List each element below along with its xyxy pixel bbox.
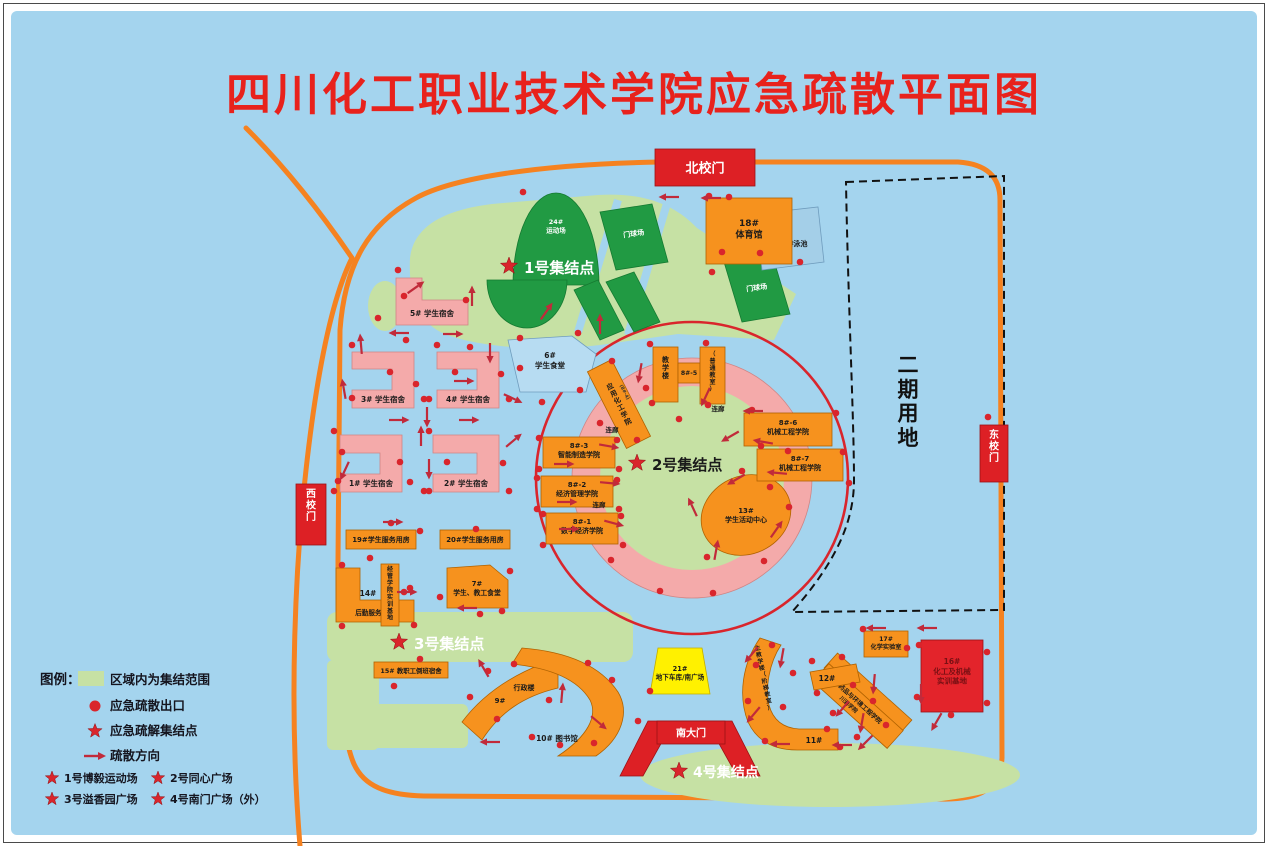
bldg-7-canteen: 7#学生、教工食堂 bbox=[447, 565, 508, 608]
exit-dot bbox=[833, 410, 840, 417]
evacuation-arrow-head bbox=[389, 329, 397, 336]
exit-dot bbox=[339, 449, 346, 456]
label: 地 bbox=[898, 426, 919, 450]
evacuation-arrow bbox=[866, 624, 887, 631]
bldg-9-admin-label: 9# bbox=[495, 697, 506, 705]
bldg-1-dorm-label: 1# 学生宿舍 bbox=[349, 478, 394, 488]
exit-dot bbox=[860, 626, 867, 633]
exit-dot bbox=[331, 428, 338, 435]
exit-dot bbox=[539, 399, 546, 406]
evacuation-arrow bbox=[917, 624, 938, 631]
exit-dot bbox=[676, 416, 683, 423]
bldg-19-service: 19#学生服务用房 bbox=[346, 530, 416, 549]
exit-dot bbox=[339, 562, 346, 569]
exit-dot bbox=[846, 480, 853, 487]
exit-dot bbox=[473, 526, 480, 533]
exit-dot bbox=[609, 677, 616, 684]
exit-dot bbox=[780, 704, 787, 711]
exit-dot bbox=[769, 642, 776, 649]
legend-heading: 图例： bbox=[40, 671, 81, 688]
evacuation-arrow-shaft bbox=[561, 690, 562, 703]
exit-dot bbox=[557, 742, 564, 749]
bldg-2-dorm: 2# 学生宿舍 bbox=[433, 435, 499, 492]
exit-dot bbox=[500, 460, 507, 467]
legend-site-3: 3号溢香园广场 bbox=[45, 792, 137, 806]
evacuation-arrow-head bbox=[659, 193, 667, 200]
bldg-9-admin-label: 行政楼 bbox=[513, 683, 535, 692]
label: 实 bbox=[387, 593, 393, 601]
evacuation-arrow-head bbox=[559, 682, 567, 690]
exit-dot bbox=[739, 468, 746, 475]
exit-dot bbox=[904, 645, 911, 652]
exit-dot bbox=[401, 293, 408, 300]
label: 楼 bbox=[662, 371, 669, 380]
exit-dot bbox=[647, 688, 654, 695]
evacuation-arrow-head bbox=[514, 396, 524, 406]
label: 管 bbox=[387, 572, 393, 580]
evacuation-arrow bbox=[417, 426, 424, 447]
exit-dot bbox=[649, 400, 656, 407]
exit-dot bbox=[840, 449, 847, 456]
gate-south-label: 南大门 bbox=[676, 726, 706, 739]
exit-dot bbox=[616, 466, 623, 473]
label: 门 bbox=[306, 510, 316, 523]
label: 经 bbox=[387, 565, 393, 573]
exit-dot bbox=[608, 557, 615, 564]
bldg-6-canteen: 6#学生食堂 bbox=[508, 336, 596, 392]
bldg-16-training-base: 16#化工及机械实训基地 bbox=[921, 640, 983, 712]
bldg-11-main-teaching-label: 11# bbox=[806, 736, 823, 745]
bldg-9-admin: 行政楼9# bbox=[462, 660, 558, 740]
evacuation-arrow-head bbox=[701, 194, 709, 201]
exit-dot bbox=[331, 488, 338, 495]
legend-site-label: 4号南门广场（外） bbox=[170, 792, 266, 806]
evacuation-arrow-head bbox=[917, 624, 925, 631]
exit-dot bbox=[413, 381, 420, 388]
exit-dot bbox=[467, 694, 474, 701]
exit-dot bbox=[467, 344, 474, 351]
exit-dot bbox=[437, 594, 444, 601]
bldg-3-dorm: 3# 学生宿舍 bbox=[352, 352, 414, 408]
exit-dot bbox=[839, 654, 846, 661]
bldg-4-dorm-label: 4# 学生宿舍 bbox=[446, 394, 491, 404]
evacuation-arrow bbox=[558, 682, 567, 703]
evacuation-arrow-head bbox=[472, 416, 480, 423]
gate-east: 东校门 bbox=[980, 425, 1008, 482]
campus-map: 二期用地24#运动场门球场门球场游泳池18#体育馆5# 学生宿舍3# 学生宿舍4… bbox=[0, 0, 1268, 846]
corridor-label: 连廊 bbox=[712, 404, 726, 413]
evacuation-arrow-head bbox=[417, 426, 424, 434]
assembly-area bbox=[330, 704, 468, 748]
exit-dot bbox=[757, 250, 764, 257]
exit-dot bbox=[614, 437, 621, 444]
exit-dot bbox=[597, 420, 604, 427]
exit-dot bbox=[349, 395, 356, 402]
legend-item-label: 疏散方向 bbox=[110, 748, 160, 763]
exit-dot bbox=[575, 330, 582, 337]
exit-dot bbox=[499, 608, 506, 615]
exit-dot bbox=[534, 506, 541, 513]
assembly-2-label: 2号集结点 bbox=[652, 456, 722, 474]
bldg-21-parking: 21#地下车库/南广场 bbox=[650, 648, 710, 694]
assembly-3-label: 3号集结点 bbox=[414, 635, 484, 653]
bldg-8-5-link-label: 8#-5 bbox=[681, 370, 697, 377]
assembly-4-label: 4号集结点 bbox=[693, 764, 759, 781]
exit-dot bbox=[850, 682, 857, 689]
exit-dot bbox=[407, 479, 414, 486]
legend-item-label: 应急疏散出口 bbox=[110, 698, 185, 713]
label: 校 bbox=[306, 499, 317, 512]
evacuation-arrow bbox=[425, 459, 432, 480]
vertical-label: 教学楼 bbox=[661, 355, 670, 380]
evacuation-arrow bbox=[459, 416, 480, 423]
exit-dot bbox=[814, 690, 821, 697]
bldg-2-dorm-label: 2# 学生宿舍 bbox=[444, 478, 489, 488]
exit-dot bbox=[434, 342, 441, 349]
exit-dot bbox=[703, 340, 710, 347]
exit-dot bbox=[620, 542, 627, 549]
bldg-20-service-label: 20#学生服务用房 bbox=[446, 535, 504, 544]
exit-dot bbox=[511, 661, 518, 668]
label: 校 bbox=[989, 440, 1000, 453]
exit-dot bbox=[618, 513, 625, 520]
exit-dot bbox=[426, 396, 433, 403]
exit-dot bbox=[498, 371, 505, 378]
exit-dot bbox=[529, 734, 536, 741]
exit-dot bbox=[948, 712, 955, 719]
evacuation-arrow bbox=[776, 648, 787, 669]
vertical-label: 西校门 bbox=[306, 488, 317, 523]
legend-area-swatch bbox=[78, 671, 104, 686]
road bbox=[246, 128, 352, 258]
evacuation-arrow-head bbox=[856, 725, 864, 734]
exit-dot bbox=[870, 698, 877, 705]
evacuation-arrow bbox=[423, 407, 430, 428]
bldg-3-dorm-label: 3# 学生宿舍 bbox=[361, 394, 406, 404]
bldg-10-library: 10# 图书馆 bbox=[512, 648, 623, 756]
exit-dot bbox=[616, 506, 623, 513]
exit-dot bbox=[657, 588, 664, 595]
bldg-15-staff-dorm-label: 15# 教职工倒班宿舍 bbox=[380, 666, 442, 675]
exit-dot bbox=[585, 660, 592, 667]
exit-dot bbox=[634, 437, 641, 444]
label: 东 bbox=[989, 428, 999, 441]
exit-dot bbox=[830, 710, 837, 717]
exit-dot bbox=[517, 335, 524, 342]
exit-dot bbox=[506, 488, 513, 495]
exit-dot bbox=[591, 740, 598, 747]
exit-dot bbox=[609, 358, 616, 365]
label: 室 bbox=[709, 378, 715, 386]
evacuation-arrow-shaft bbox=[774, 473, 787, 474]
label: 用 bbox=[898, 402, 919, 426]
evacuation-arrow-head bbox=[467, 377, 475, 384]
exit-dot bbox=[577, 387, 584, 394]
bldg-11-main-teaching: 主教学楼（阶梯教室）11# bbox=[743, 638, 838, 750]
exit-dot bbox=[517, 365, 524, 372]
legend-item-label: 区域内为集结范围 bbox=[110, 672, 210, 687]
exit-dot bbox=[540, 511, 547, 518]
legend-site-label: 2号同心广场 bbox=[170, 771, 233, 785]
exit-dot bbox=[536, 466, 543, 473]
label: 门 bbox=[989, 451, 999, 464]
exit-dot bbox=[452, 369, 459, 376]
label: 普 bbox=[709, 357, 715, 365]
evacuation-arrow-shaft bbox=[781, 648, 783, 661]
label: 基 bbox=[386, 607, 394, 615]
exit-dot bbox=[397, 459, 404, 466]
evacuation-arrow-shaft bbox=[361, 341, 362, 354]
exit-dot bbox=[426, 488, 433, 495]
label: 学 bbox=[662, 363, 669, 372]
exit-dot bbox=[444, 459, 451, 466]
legend-item-star: 应急疏解集结点 bbox=[88, 723, 198, 738]
evacuation-arrow bbox=[389, 416, 410, 423]
evacuation-arrow-head bbox=[776, 660, 784, 669]
bldg-20-service: 20#学生服务用房 bbox=[440, 530, 510, 549]
exit-dot bbox=[704, 554, 711, 561]
evacuation-arrow-shaft bbox=[506, 438, 516, 446]
gate-north-label: 北校门 bbox=[685, 160, 724, 176]
corridor-label: 连廊 bbox=[606, 425, 620, 434]
bldg-8-7: 8#-7机械工程学院 bbox=[757, 449, 843, 481]
legend-site-star bbox=[45, 792, 58, 805]
legend-item-arrow: 疏散方向 bbox=[84, 748, 160, 763]
exit-dot bbox=[984, 649, 991, 656]
exit-dot bbox=[520, 189, 527, 196]
evacuation-arrow bbox=[389, 329, 410, 336]
legend-exit-dot bbox=[90, 701, 101, 712]
exit-dot bbox=[417, 528, 424, 535]
legend-site-label: 3号溢香园广场 bbox=[64, 792, 138, 806]
bldg-jingguan-training: 经管学院实训基地 bbox=[381, 564, 399, 626]
exit-dot bbox=[540, 542, 547, 549]
vertical-label: （普通教室） bbox=[708, 350, 716, 393]
bldg-1-dorm: 1# 学生宿舍 bbox=[340, 435, 402, 492]
legend-site-star bbox=[151, 771, 164, 784]
evacuation-arrow-shaft bbox=[600, 482, 613, 483]
exit-dot bbox=[375, 315, 382, 322]
evacuation-arrow-head bbox=[480, 738, 488, 745]
exit-dot bbox=[411, 622, 418, 629]
exit-dot bbox=[643, 385, 650, 392]
label: 西 bbox=[306, 488, 316, 500]
exit-dot bbox=[854, 734, 861, 741]
evacuation-arrow-head bbox=[928, 723, 938, 733]
exit-dot bbox=[745, 698, 752, 705]
bldg-18-gym-label: 18#体育馆 bbox=[735, 219, 762, 241]
exit-dot bbox=[709, 269, 716, 276]
label: 二 bbox=[898, 353, 919, 377]
label: 院 bbox=[387, 586, 393, 594]
legend-item-dot: 应急疏散出口 bbox=[90, 698, 186, 713]
exit-dot bbox=[786, 504, 793, 511]
evacuation-arrow bbox=[659, 193, 680, 200]
exit-dot bbox=[635, 718, 642, 725]
bldg-5-dorm-label: 5# 学生宿舍 bbox=[410, 308, 455, 318]
bldg-8-3: 8#-3智能制造学院 bbox=[543, 437, 615, 468]
gate-west: 西校门 bbox=[296, 484, 326, 545]
exit-dot bbox=[477, 611, 484, 618]
legend-site-2: 2号同心广场 bbox=[151, 771, 232, 785]
exit-dot bbox=[984, 700, 991, 707]
legend-item-area: 区域内为集结范围 bbox=[78, 671, 210, 687]
legend: 图例：区域内为集结范围应急疏散出口应急疏解集结点疏散方向1号博毅运动场2号同心广… bbox=[40, 671, 266, 806]
vertical-label: 二期用地 bbox=[898, 353, 919, 450]
evacuation-arrow-shaft bbox=[874, 674, 875, 687]
bldg-19-service-label: 19#学生服务用房 bbox=[352, 535, 410, 544]
evacuation-arrow-shaft bbox=[863, 736, 872, 745]
gate-north: 北校门 bbox=[655, 149, 755, 186]
exit-dot bbox=[809, 658, 816, 665]
exit-dot bbox=[726, 194, 733, 201]
exit-dot bbox=[507, 568, 514, 575]
exit-dot bbox=[395, 267, 402, 274]
legend-site-star bbox=[151, 792, 164, 805]
legend-site-label: 1号博毅运动场 bbox=[64, 771, 138, 785]
exit-dot bbox=[785, 448, 792, 455]
legend-site-star bbox=[45, 771, 58, 784]
exit-dot bbox=[710, 590, 717, 597]
bldg-14-logistics-label: 14# bbox=[360, 589, 377, 598]
evacuation-arrow-head bbox=[402, 416, 410, 423]
exit-dot bbox=[536, 435, 543, 442]
label: 训 bbox=[387, 600, 393, 608]
bldg-10-library-label: 10# 图书馆 bbox=[536, 733, 578, 743]
legend-star bbox=[88, 724, 102, 738]
exit-dot bbox=[367, 555, 374, 562]
exit-dot bbox=[719, 249, 726, 256]
exit-dot bbox=[647, 341, 654, 348]
bldg-8-5-link: 8#-5 bbox=[678, 363, 700, 383]
exit-dot bbox=[761, 558, 768, 565]
bldg-17-chem-lab: 17#化学实验室 bbox=[864, 631, 908, 657]
exit-dot bbox=[417, 656, 424, 663]
evacuation-arrow bbox=[928, 711, 944, 732]
label: 学 bbox=[387, 579, 393, 587]
exit-dot bbox=[494, 716, 501, 723]
exit-dot bbox=[426, 428, 433, 435]
evacuation-arrow-head bbox=[423, 420, 430, 428]
legend-site-1: 1号博毅运动场 bbox=[45, 771, 137, 785]
vertical-label: 经管学院实训基地 bbox=[386, 565, 394, 622]
exit-dot bbox=[349, 342, 356, 349]
bldg-8-5-east: （普通教室） bbox=[700, 347, 725, 404]
exit-dot bbox=[790, 670, 797, 677]
exit-dot bbox=[463, 297, 470, 304]
vertical-label: 东校门 bbox=[989, 428, 1000, 464]
bldg-9-admin-shape bbox=[462, 660, 558, 740]
exit-dot bbox=[883, 722, 890, 729]
evacuation-arrow-head bbox=[356, 333, 364, 341]
legend-arrow-head bbox=[98, 752, 106, 760]
exit-dot bbox=[387, 369, 394, 376]
exit-dot bbox=[391, 683, 398, 690]
evacuation-arrow-shaft bbox=[343, 386, 345, 399]
label: 通 bbox=[709, 364, 715, 372]
legend-site-4: 4号南门广场（外） bbox=[151, 792, 265, 806]
evacuation-arrow bbox=[454, 377, 475, 384]
evacuation-arrow-shaft bbox=[343, 462, 348, 474]
exit-dot bbox=[762, 738, 769, 745]
evacuation-arrow-head bbox=[410, 588, 418, 595]
exit-dot bbox=[797, 259, 804, 266]
label: 教 bbox=[708, 371, 716, 379]
bldg-18-gym: 18#体育馆 bbox=[706, 198, 792, 264]
evacuation-arrow-head bbox=[425, 472, 432, 480]
exit-dot bbox=[824, 726, 831, 733]
label: 期 bbox=[898, 377, 919, 401]
evacuation-arrow-head bbox=[396, 518, 404, 525]
evacuation-arrow bbox=[504, 431, 524, 450]
exit-dot bbox=[753, 662, 760, 669]
evacuation-arrow-head bbox=[866, 624, 874, 631]
label: 教 bbox=[661, 355, 670, 364]
evacuation-arrow bbox=[356, 333, 365, 354]
exit-dot bbox=[985, 414, 992, 421]
corridor-label: 连廊 bbox=[593, 500, 607, 509]
bldg-15-staff-dorm: 15# 教职工倒班宿舍 bbox=[374, 662, 448, 678]
evacuation-arrow bbox=[502, 391, 524, 406]
bldg-8-1: 8#-1数字经济学院 bbox=[546, 513, 618, 544]
exit-dot bbox=[546, 697, 553, 704]
exit-dot bbox=[403, 337, 410, 344]
assembly-1-label: 1号集结点 bbox=[524, 259, 594, 277]
evacuation-arrow-shaft bbox=[935, 713, 942, 724]
label: 地 bbox=[387, 614, 393, 622]
exit-dot bbox=[916, 642, 923, 649]
label: （ bbox=[709, 350, 715, 358]
exit-dot bbox=[339, 623, 346, 630]
bldg-8-5-west: 教学楼 bbox=[653, 347, 678, 402]
legend-item-label: 应急疏解集结点 bbox=[110, 723, 198, 738]
exit-dot bbox=[767, 484, 774, 491]
road bbox=[294, 258, 352, 846]
exit-dot bbox=[534, 475, 541, 482]
bldg-14-logistics: 14#后勤服务用房 bbox=[336, 568, 414, 622]
bldg-12-bar-label: 12# bbox=[819, 674, 836, 683]
